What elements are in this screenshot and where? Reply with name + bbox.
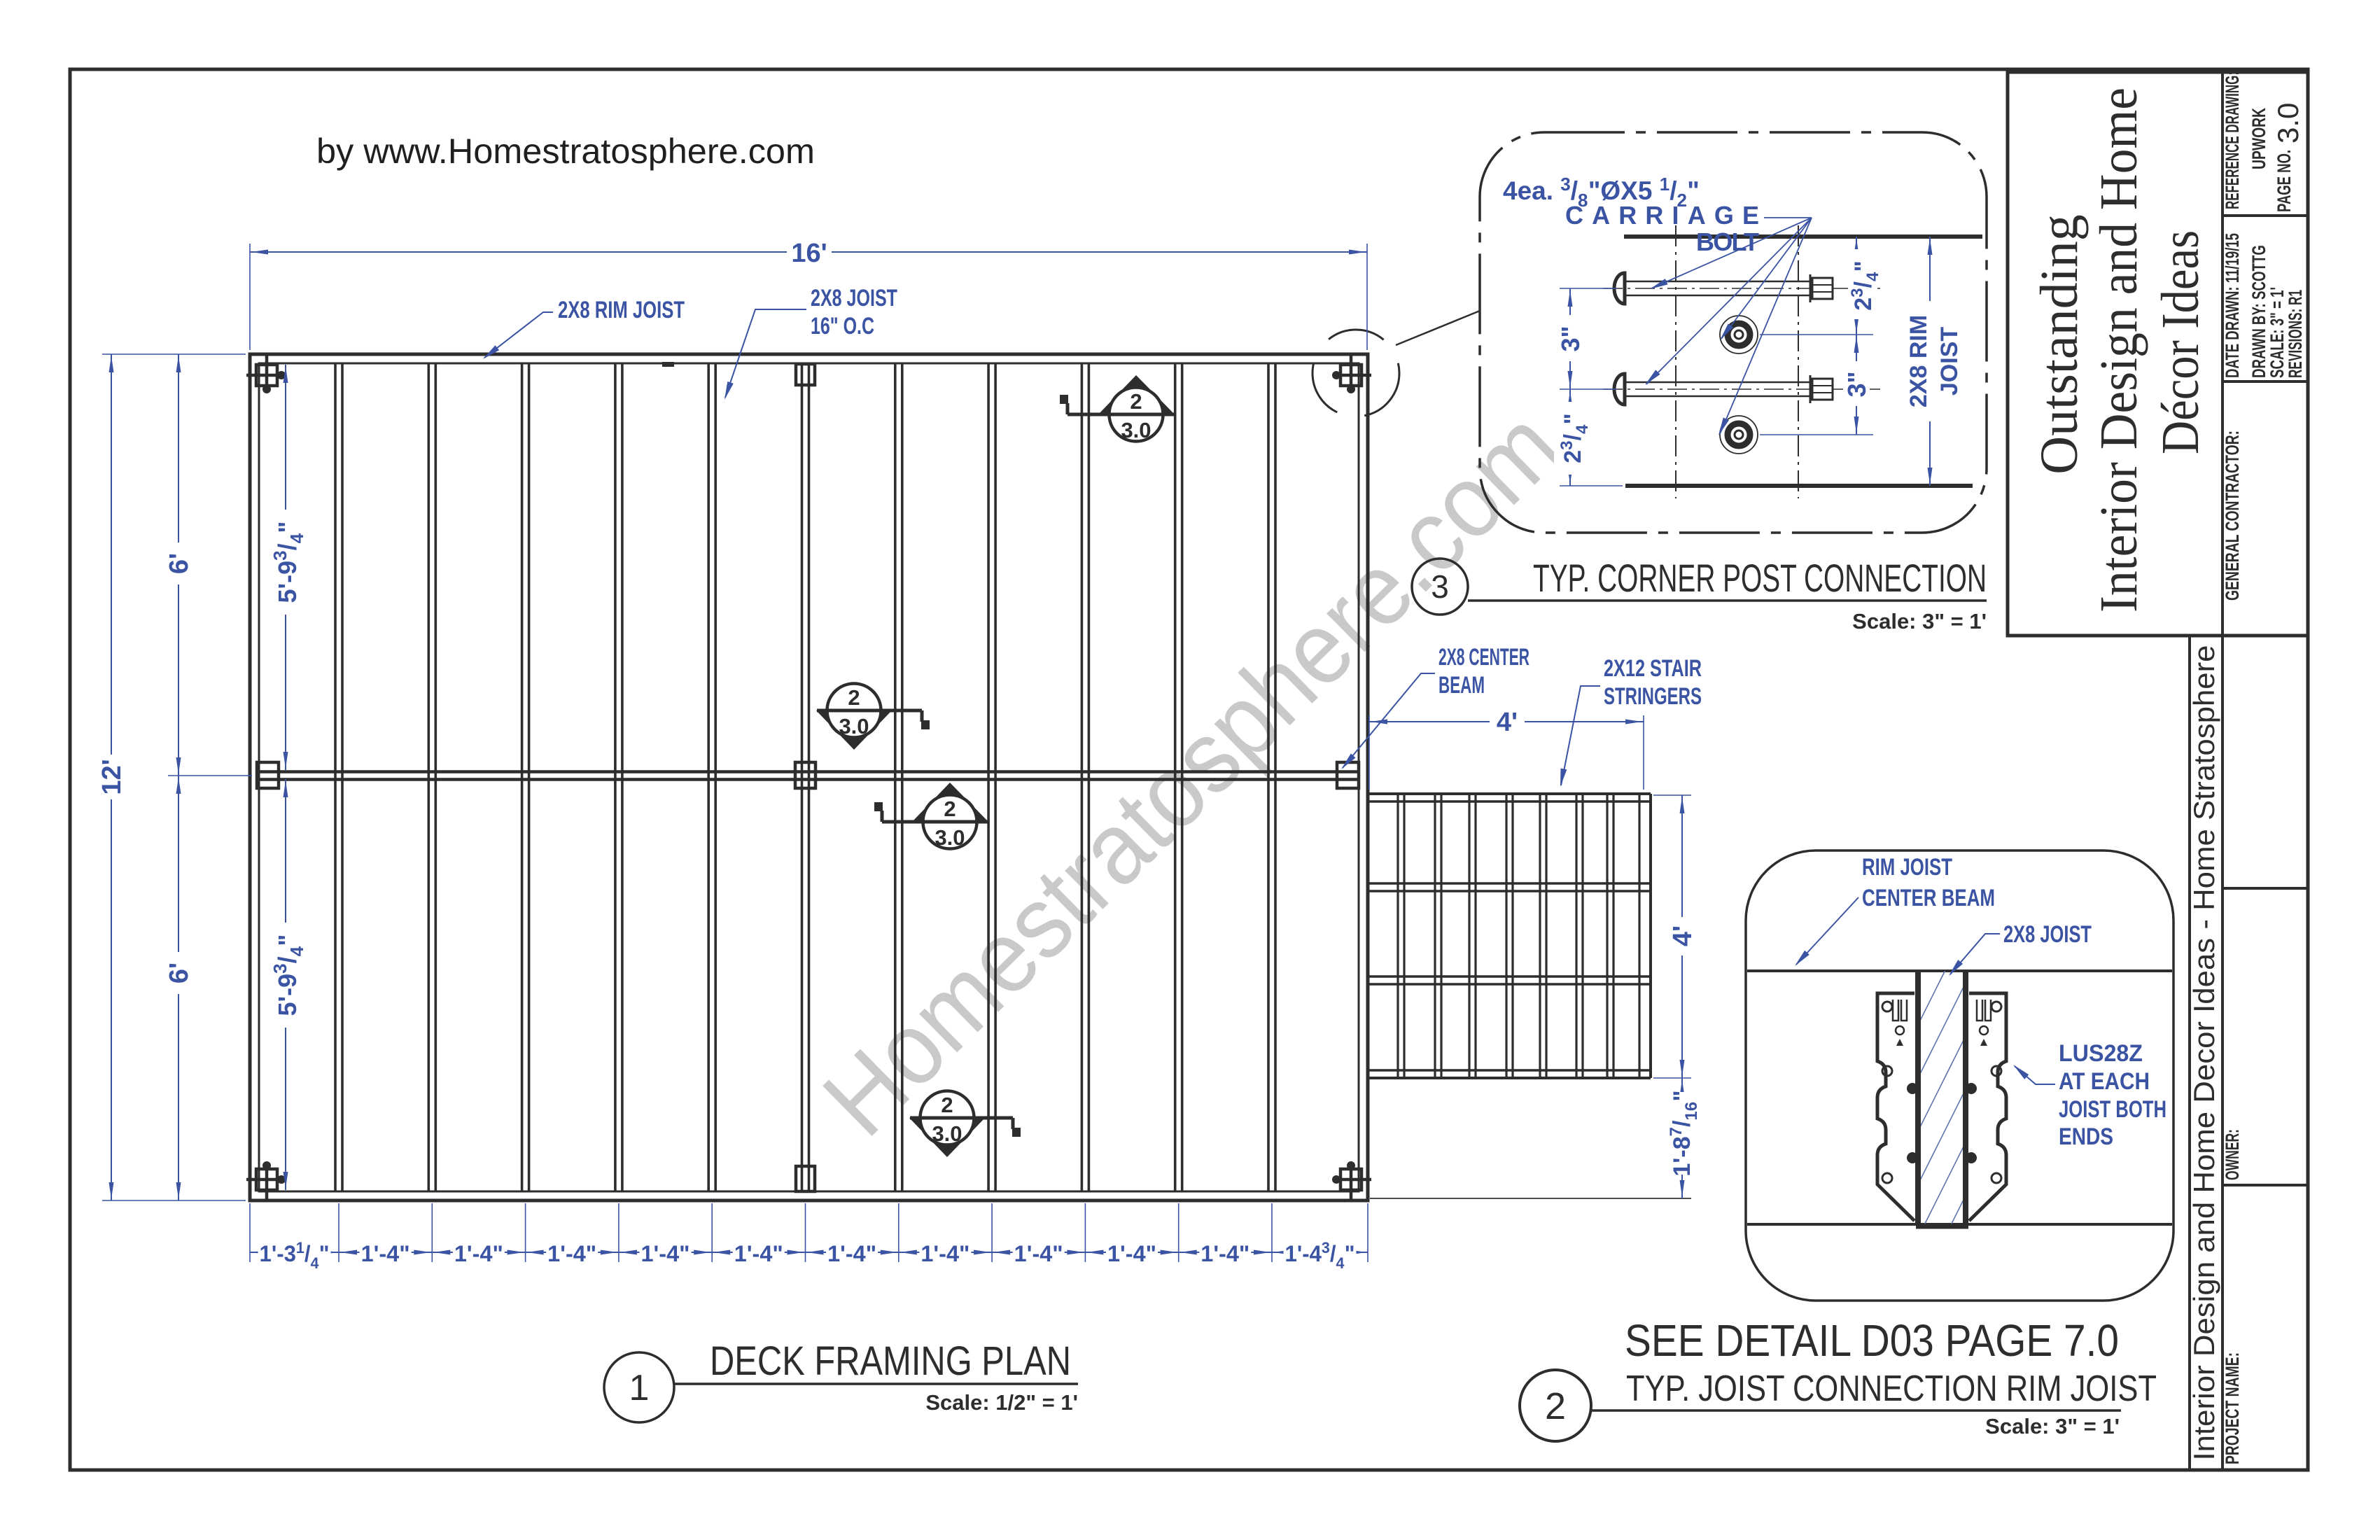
svg-text:2X8 RIM: 2X8 RIM [1905,315,1932,407]
svg-text:1'-4": 1'-4" [454,1241,503,1266]
svg-text:2: 2 [941,1093,953,1117]
svg-text:by www.Homestratosphere.com: by www.Homestratosphere.com [316,132,815,171]
svg-text:Interior Design and Home Decor: Interior Design and Home Decor Ideas - H… [2187,645,2220,1461]
svg-text:SEE DETAIL D03 PAGE 7.0: SEE DETAIL D03 PAGE 7.0 [1625,1315,2119,1366]
svg-text:2X12 STAIR: 2X12 STAIR [1604,655,1702,682]
svg-text:1'-4": 1'-4" [641,1241,690,1266]
svg-text:6': 6' [164,962,194,983]
svg-text:JOIST: JOIST [1936,327,1963,395]
svg-text:1'-4": 1'-4" [1014,1241,1063,1266]
svg-text:UPWORK: UPWORK [2248,108,2269,169]
svg-text:1'-4": 1'-4" [1107,1241,1156,1266]
svg-text:TYP. CORNER POST CONNECTION: TYP. CORNER POST CONNECTION [1533,556,1987,600]
svg-text:PAGE NO.: PAGE NO. [2274,150,2295,212]
svg-text:2: 2 [1130,389,1142,414]
svg-text:REFERENCE DRAWING:: REFERENCE DRAWING: [2222,71,2243,209]
svg-text:4': 4' [1668,925,1697,946]
svg-text:STRINGERS: STRINGERS [1604,683,1702,710]
svg-text:Scale: 1/2" = 1': Scale: 1/2" = 1' [925,1390,1078,1415]
svg-text:3": 3" [1842,371,1871,397]
svg-text:1'-4": 1'-4" [547,1241,596,1266]
svg-text:6': 6' [164,553,194,574]
svg-text:2X8 JOIST: 2X8 JOIST [811,285,897,311]
svg-text:1'-4": 1'-4" [827,1241,876,1266]
svg-text:OWNER:: OWNER: [2222,1129,2243,1180]
svg-text:REVISIONS: R1: REVISIONS: R1 [2285,290,2306,378]
svg-text:5'-93/4 ": 5'-93/4 " [269,521,307,603]
svg-text:PROJECT NAME:: PROJECT NAME: [2222,1352,2243,1464]
svg-text:2X8 CENTER: 2X8 CENTER [1438,644,1529,671]
svg-text:3.0: 3.0 [2271,103,2304,143]
svg-text:3": 3" [1556,325,1585,351]
svg-text:LUS28Z: LUS28Z [2059,1040,2143,1067]
svg-text:2: 2 [848,685,860,710]
svg-text:1'-4": 1'-4" [734,1241,783,1266]
svg-text:RIM JOIST: RIM JOIST [1862,854,1952,881]
svg-text:Scale: 3" = 1': Scale: 3" = 1' [1852,609,1987,633]
svg-text:16" O.C: 16" O.C [811,313,874,339]
svg-text:DECK FRAMING PLAN: DECK FRAMING PLAN [710,1338,1071,1384]
svg-text:Interior Design and Home: Interior Design and Home [2089,87,2148,612]
svg-text:3: 3 [1431,568,1449,605]
svg-text:GENERAL CONTRACTOR:: GENERAL CONTRACTOR: [2222,430,2243,601]
svg-text:DATE DRAWN: 11/19/15: DATE DRAWN: 11/19/15 [2222,233,2243,378]
svg-text:BEAM: BEAM [1438,672,1485,699]
svg-text:BOLT: BOLT [1696,227,1759,256]
svg-text:16': 16' [791,239,827,268]
svg-text:1'-4": 1'-4" [920,1241,969,1266]
svg-text:TYP. JOIST CONNECTION RIM JOIS: TYP. JOIST CONNECTION RIM JOIST [1626,1368,2157,1409]
svg-text:Outstanding: Outstanding [2030,214,2089,475]
svg-text:ENDS: ENDS [2059,1123,2113,1150]
svg-text:3.0: 3.0 [839,714,869,738]
svg-text:2: 2 [1545,1385,1566,1427]
svg-text:1'-4": 1'-4" [1200,1241,1249,1266]
svg-text:Scale: 3" = 1': Scale: 3" = 1' [1985,1414,2120,1438]
svg-text:JOIST BOTH: JOIST BOTH [2059,1096,2166,1123]
svg-text:CARRIAGE: CARRIAGE [1565,201,1759,230]
svg-text:Décor Ideas: Décor Ideas [2151,230,2210,454]
svg-text:1: 1 [629,1368,650,1408]
svg-text:5'-93/4 ": 5'-93/4 " [269,934,307,1016]
svg-text:1'-4": 1'-4" [361,1241,410,1266]
svg-text:2X8 JOIST: 2X8 JOIST [2003,921,2092,948]
svg-text:3.0: 3.0 [932,1121,962,1146]
svg-text:2: 2 [944,797,955,821]
svg-text:AT EACH: AT EACH [2059,1068,2150,1095]
svg-text:3.0: 3.0 [934,825,965,850]
svg-text:3.0: 3.0 [1121,418,1151,442]
svg-text:4': 4' [1497,708,1518,737]
svg-text:12': 12' [97,759,127,794]
svg-text:2X8 RIM JOIST: 2X8 RIM JOIST [558,297,685,323]
svg-text:CENTER BEAM: CENTER BEAM [1862,885,1995,911]
